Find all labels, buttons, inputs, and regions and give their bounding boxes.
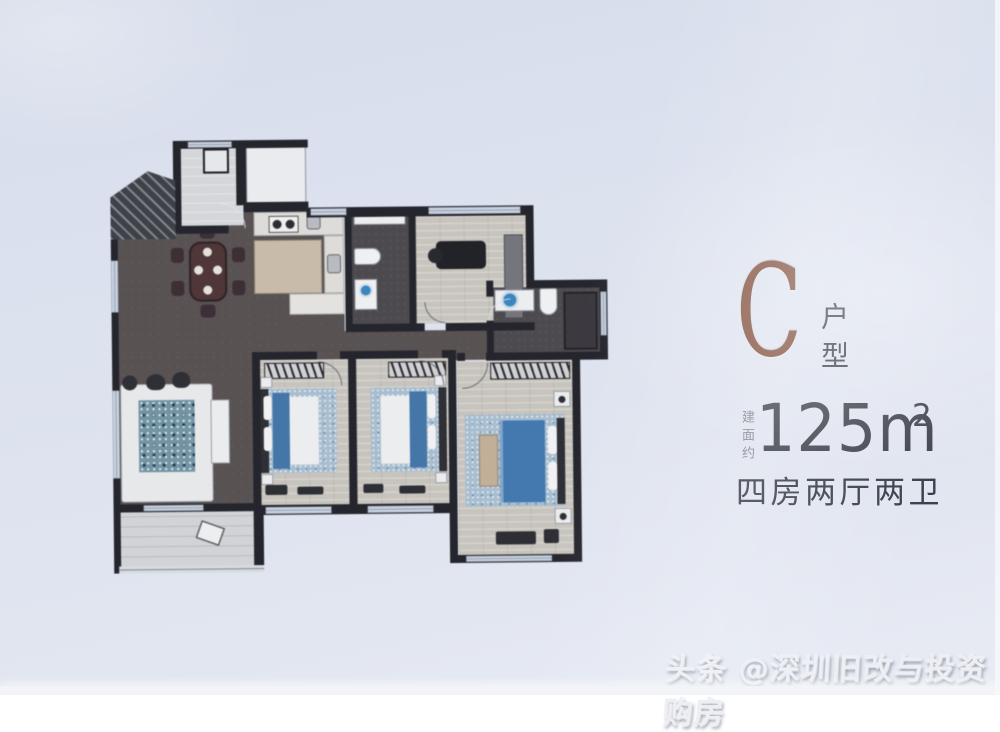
wall — [526, 279, 607, 288]
plant-icon — [138, 400, 195, 473]
headboard-icon — [557, 418, 566, 504]
side-table-icon — [122, 375, 137, 390]
wall — [346, 323, 417, 332]
plate-icon — [213, 265, 222, 274]
floor-plan — [110, 133, 615, 580]
dining-chair-icon — [171, 248, 184, 263]
window — [466, 555, 552, 562]
washing-machine-icon — [354, 279, 377, 310]
pillow-icon — [548, 462, 557, 490]
dining-table-set — [169, 225, 250, 318]
dining-chair-icon — [232, 280, 245, 295]
duvet-icon — [380, 396, 410, 464]
duct-shaft — [246, 145, 307, 206]
unit-type-label: 户型 — [813, 302, 853, 380]
window — [368, 505, 434, 513]
dining-chair-icon — [232, 247, 245, 262]
dining-chair-icon — [200, 305, 215, 318]
lamp-icon — [560, 513, 567, 520]
wall — [417, 323, 425, 331]
stove-icon — [269, 216, 299, 233]
balcony-floor — [121, 505, 255, 566]
duvet-icon — [289, 396, 319, 464]
ac-platform — [110, 171, 176, 240]
pillow-icon — [428, 425, 436, 449]
tv-console-icon — [265, 485, 287, 495]
window — [188, 141, 232, 147]
wardrobe-icon — [490, 362, 570, 380]
kitchen-counter — [289, 293, 344, 315]
armchair-icon — [172, 372, 190, 388]
nightstand-icon — [435, 472, 447, 483]
dresser-icon — [496, 531, 536, 544]
wall — [252, 351, 317, 360]
nightstand-icon — [260, 377, 272, 388]
unit-letter: C — [736, 248, 802, 375]
pillow-icon — [548, 426, 557, 454]
dining-chair-icon — [171, 281, 184, 296]
wall — [457, 353, 465, 361]
window — [266, 506, 332, 514]
wall — [486, 352, 576, 361]
blanket-icon — [272, 393, 290, 469]
plate-icon — [194, 266, 203, 275]
wall — [344, 207, 352, 332]
tv-console-icon — [297, 486, 323, 494]
toilet-icon — [354, 248, 381, 265]
bench-icon — [479, 435, 499, 487]
wall — [572, 352, 582, 562]
tv-cabinet-icon — [210, 399, 230, 463]
area-prefix-label: 建面约 — [737, 410, 756, 464]
armchair-icon — [146, 374, 165, 390]
washer-drum-icon — [359, 284, 372, 297]
area-superscript: 2 — [912, 398, 932, 434]
layout-description: 四房两厅两卫 — [736, 467, 943, 512]
pillow-icon — [263, 396, 271, 420]
photo-edge-bottom — [0, 686, 1000, 695]
pillow-icon — [264, 427, 272, 451]
nightstand-icon — [555, 508, 572, 524]
sink-icon — [327, 254, 341, 273]
nightstand-icon — [261, 474, 273, 485]
wall — [486, 281, 493, 297]
blanket-icon — [409, 391, 427, 467]
desk-icon — [436, 241, 486, 270]
chair-icon — [544, 529, 559, 543]
balcony-railing — [119, 565, 264, 574]
toilet-icon — [539, 288, 557, 315]
wall — [252, 352, 262, 515]
window — [112, 391, 120, 479]
photo-edge-right — [995, 0, 1000, 695]
wall — [243, 202, 308, 213]
wall — [525, 205, 534, 288]
window — [111, 261, 119, 313]
plate-icon — [203, 286, 212, 295]
shower-icon — [563, 292, 598, 350]
tv-console-icon — [363, 484, 383, 493]
burner-icon — [273, 220, 282, 229]
office-chair-icon — [428, 248, 443, 263]
burner-icon — [286, 220, 295, 229]
bathroom-1-floor — [352, 217, 410, 328]
shoe-cabinet-icon — [203, 148, 229, 173]
photo-background: C 户型 建面约 125m 2 四房两厅两卫 头条 @深圳旧改与投资购房 — [0, 0, 1000, 695]
window — [310, 208, 346, 215]
kitchen-island — [254, 239, 323, 294]
pillow-icon — [427, 394, 435, 418]
window — [428, 206, 520, 214]
wardrobe-icon — [264, 362, 324, 379]
balcony-door-track — [144, 505, 204, 512]
lamp-icon — [558, 396, 565, 403]
wall — [348, 351, 358, 514]
window — [600, 291, 606, 335]
headboard-icon — [438, 387, 447, 471]
wall — [442, 350, 450, 358]
wall — [487, 321, 494, 361]
wall — [408, 206, 416, 331]
nightstand-icon — [553, 391, 570, 407]
wall — [236, 140, 247, 205]
plate-icon — [203, 248, 212, 257]
tv-console-icon — [399, 485, 425, 493]
duvet-icon — [500, 420, 546, 502]
